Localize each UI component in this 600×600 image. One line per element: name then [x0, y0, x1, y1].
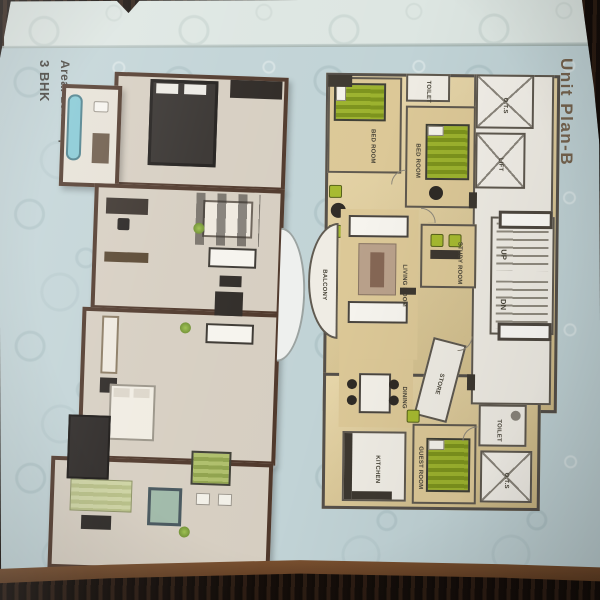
2d-kitchen: KITCHEN [342, 431, 407, 502]
3d-armchair [218, 494, 232, 506]
2d-kitchen-counter [344, 433, 353, 499]
3d-pillow [184, 84, 206, 95]
3d-pillow [156, 83, 178, 94]
3d-pillow [113, 388, 129, 398]
2d-dining: DINING [339, 359, 414, 428]
bhk-label: 3 BHK [37, 60, 52, 102]
dining-label: DINING [399, 353, 408, 443]
2d-lift-shaft: LIFT [475, 132, 526, 189]
3d-shelf [104, 251, 148, 263]
2d-toilet-top: TOILET [406, 74, 450, 102]
2d-living-room: LIVING ROOM [339, 209, 419, 360]
wall-segment [400, 288, 416, 295]
wall-segment [469, 192, 477, 208]
living-label: LIVING ROOM [400, 241, 409, 331]
lift-label: LIFT [496, 120, 505, 210]
brochure-photo: 3 BHK Area: 1946 sq.ft Unit Plan-B [0, 0, 600, 600]
2d-side-table [429, 186, 443, 200]
floorplan-3d [45, 70, 304, 580]
3d-armchair [196, 493, 210, 505]
3d-kitchen-counter [100, 315, 119, 374]
2d-bedroom1: BED ROOM [327, 77, 402, 174]
guest-label: GUEST ROOM [416, 423, 425, 513]
bedroom2-label: BED ROOM [413, 116, 422, 206]
2d-pillow [428, 126, 444, 136]
3d-textured-rug [69, 478, 132, 512]
2d-dining-chair [347, 395, 357, 405]
3d-coffee-table [219, 276, 241, 288]
study-label: STUDY ROOM [455, 218, 464, 308]
2d-bedroom2: BED ROOM [405, 106, 476, 209]
2d-dining-table [359, 373, 391, 413]
3d-sofa-upper [208, 247, 257, 269]
kitchen-label: KITCHEN [373, 424, 382, 514]
3d-tv-console [214, 291, 243, 316]
2d-ots-shaft-top: O.T.S [476, 74, 535, 129]
3d-green-bed [190, 451, 231, 486]
2d-wardrobe [328, 75, 352, 87]
3d-vanity-counter [92, 133, 110, 164]
2d-study-room: STUDY ROOM [420, 224, 477, 289]
2d-chair [407, 410, 420, 423]
2d-rug [358, 243, 397, 295]
2d-staircase: UP DN [490, 217, 555, 336]
2d-chair [430, 234, 443, 247]
3d-desk-chair [117, 218, 129, 230]
2d-sofa [349, 215, 409, 238]
floorplan-2d: O.T.S LIFT UP DN BED ROOM TOILET [322, 73, 560, 505]
3d-wardrobe [230, 80, 283, 100]
3d-bathtub [66, 94, 83, 160]
2d-chair [329, 185, 342, 198]
2d-pillow [336, 85, 346, 101]
2d-ots-shaft-bottom: O.T.S [480, 450, 533, 503]
3d-pillow [133, 389, 149, 399]
3d-study-desk [106, 198, 149, 215]
3d-toilet [93, 101, 108, 113]
3d-dining-chairs [195, 193, 261, 247]
ots-bottom-label: O.T.S [502, 436, 511, 526]
3d-aquarium [147, 487, 182, 526]
3d-dark-bed [67, 414, 111, 479]
2d-dining-chair [389, 379, 399, 389]
3d-sofa-lower [205, 323, 254, 345]
bedroom1-label: BED ROOM [368, 101, 377, 191]
3d-console-bottom [81, 515, 111, 530]
stairs-dn-label: DN [498, 260, 507, 350]
wall-segment [467, 374, 475, 390]
balcony-label: BALCONY [320, 240, 329, 330]
2d-dining-chair [347, 379, 357, 389]
2d-pillow [428, 440, 444, 450]
2d-washbasin [511, 411, 521, 421]
2d-dining-chair [389, 395, 399, 405]
